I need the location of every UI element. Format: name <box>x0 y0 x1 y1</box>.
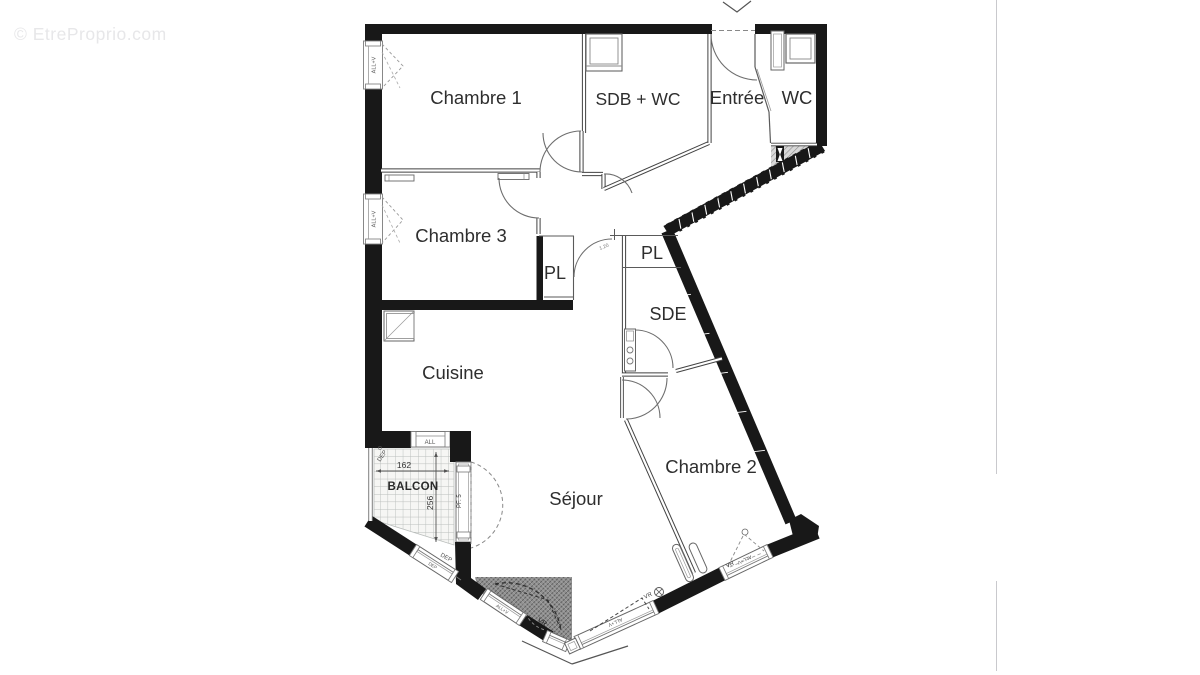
svg-text:PF. 5: PF. 5 <box>457 494 463 508</box>
svg-text:© EtreProprio.com: © EtreProprio.com <box>14 24 167 44</box>
svg-text:PL: PL <box>641 243 663 263</box>
svg-text:162: 162 <box>397 460 411 470</box>
svg-text:Entrée: Entrée <box>710 87 765 108</box>
svg-text:BALCON: BALCON <box>388 481 439 493</box>
svg-text:O: O <box>378 446 382 452</box>
svg-text:ALL+V: ALL+V <box>372 56 378 73</box>
svg-text:Chambre 2: Chambre 2 <box>665 456 757 477</box>
svg-text:ALL+V: ALL+V <box>372 210 378 227</box>
svg-text:SDE: SDE <box>649 304 686 324</box>
svg-text:PL: PL <box>544 263 566 283</box>
svg-text:ALL: ALL <box>425 440 436 446</box>
svg-text:SDB + WC: SDB + WC <box>595 89 680 109</box>
svg-text:Chambre 3: Chambre 3 <box>415 225 507 246</box>
svg-text:Cuisine: Cuisine <box>422 362 484 383</box>
svg-text:256: 256 <box>425 496 435 510</box>
svg-text:Séjour: Séjour <box>549 488 602 509</box>
svg-text:Chambre 1: Chambre 1 <box>430 87 522 108</box>
svg-text:WC: WC <box>782 87 813 108</box>
